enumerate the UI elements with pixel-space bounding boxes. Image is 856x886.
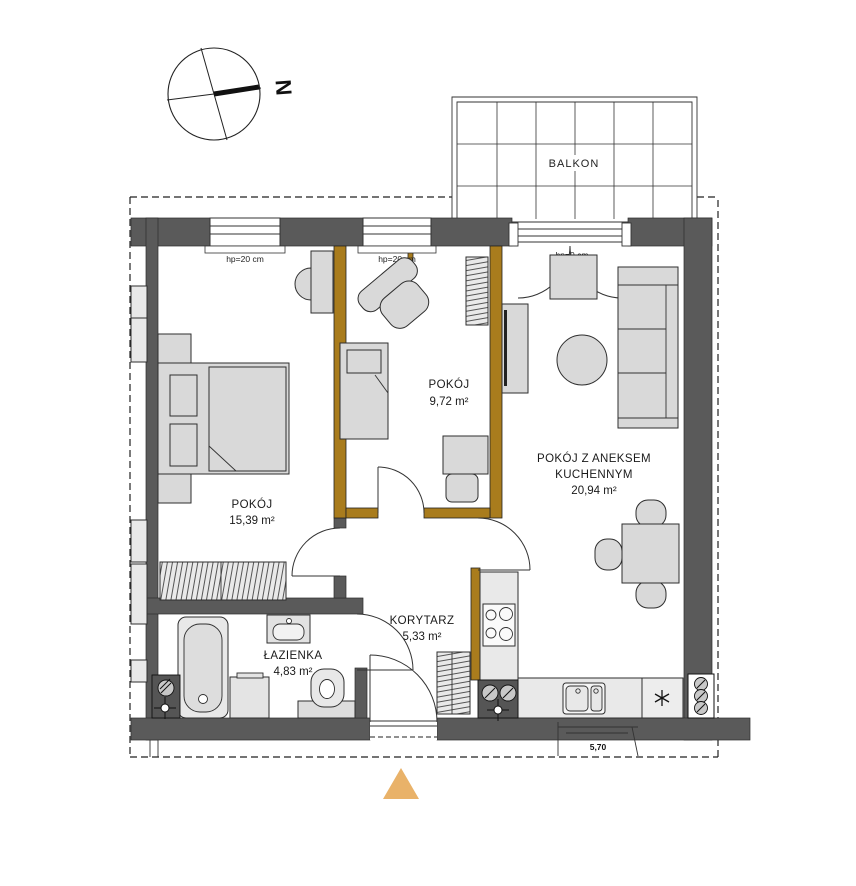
- floor-plan-page: N BALKON: [0, 0, 856, 886]
- bathroom: ŁAZIENKA 4,83 m²: [178, 615, 355, 718]
- corridor-area: 5,33 m²: [403, 631, 442, 643]
- entrance-marker-icon: [383, 768, 419, 799]
- corridor-name: KORYTARZ: [390, 615, 455, 627]
- right-wall: [684, 218, 712, 740]
- corridor-bedroom-wall-stub: [334, 518, 346, 528]
- balcony-label: BALKON: [549, 158, 600, 170]
- small-room-right-wall: [490, 246, 502, 518]
- small-room-name: POKÓJ: [429, 378, 470, 391]
- living-room-door: [478, 518, 530, 570]
- bedroom-desk-chair: [295, 268, 311, 300]
- door-frame: [509, 223, 518, 246]
- bathroom-door-wall-stub: [355, 668, 367, 718]
- bed-pillow: [170, 424, 197, 466]
- corridor: KORYTARZ 5,33 m²: [390, 615, 470, 714]
- bathroom-shaft: [152, 675, 180, 719]
- nightstand: [158, 334, 191, 363]
- living-room-name-1: POKÓJ Z ANEKSEM: [537, 452, 651, 465]
- fridge: [642, 678, 683, 718]
- dining-set: [595, 500, 679, 608]
- bathroom-area: 4,83 m²: [274, 666, 313, 678]
- bed-mattress: [209, 367, 286, 471]
- bed-pillow: [170, 375, 197, 416]
- compass-north-icon: N: [167, 48, 297, 140]
- top-wall-segment: [131, 218, 210, 246]
- dining-chair: [636, 581, 666, 608]
- commode: [550, 255, 597, 299]
- bedroom-desk: [311, 251, 333, 313]
- bottom-wall-segment: [437, 718, 750, 740]
- small-room-desk: [443, 436, 488, 474]
- washbasin: [267, 615, 310, 643]
- round-rug: [557, 335, 607, 385]
- kitchen-shaft: [478, 680, 518, 721]
- bed-pillow: [347, 350, 381, 373]
- left-wall: [146, 218, 158, 740]
- washing-machine: [230, 673, 269, 718]
- corridor-bedroom-wall-stub: [334, 576, 346, 598]
- floor-plan-drawing: N BALKON: [0, 0, 856, 886]
- bedroom: POKÓJ 15,39 m²: [158, 251, 333, 600]
- window-1-label: hp=20 cm: [226, 254, 264, 264]
- bottom-wall-segment: [131, 718, 370, 740]
- compass-north-label: N: [270, 79, 296, 97]
- small-room: POKÓJ 9,72 m²: [340, 254, 488, 502]
- living-kitchen-room: POKÓJ Z ANEKSEM KUCHENNYM 20,94 m²: [480, 255, 683, 718]
- top-wall-segment: [431, 218, 512, 246]
- bathtub: [178, 617, 228, 718]
- bedroom-area: 15,39 m²: [229, 515, 275, 527]
- kitchen-corridor-wall: [471, 568, 480, 680]
- right-wall-riser-box: [688, 674, 714, 718]
- door-frame: [622, 223, 631, 246]
- nightstand: [158, 474, 191, 503]
- living-room-area: 20,94 m²: [571, 485, 617, 497]
- window-sill: [205, 246, 285, 253]
- small-room-bottom-wall: [424, 508, 490, 518]
- wardrobe-hatch: [466, 257, 488, 325]
- balcony: BALKON: [452, 97, 697, 220]
- small-room-chair: [446, 474, 478, 502]
- top-wall-segment: [280, 218, 363, 246]
- wardrobe-hatch: [437, 652, 470, 714]
- living-room-name-2: KUCHENNYM: [555, 469, 633, 481]
- small-room-door: [378, 467, 424, 513]
- window-sill: [358, 246, 436, 253]
- dining-chair: [595, 539, 622, 570]
- sofa: [618, 267, 678, 428]
- window-1: hp=20 cm: [205, 218, 285, 264]
- kitchen-sink: [563, 683, 605, 714]
- window-2: hp=20 cm: [358, 218, 436, 264]
- dining-chair: [636, 500, 666, 527]
- hob: [483, 604, 515, 646]
- wardrobe-hatch: [160, 562, 286, 600]
- bedroom-name: POKÓJ: [232, 498, 273, 511]
- bedroom-door: [292, 528, 340, 576]
- small-room-bottom-wall: [346, 508, 378, 518]
- neighbor-dimension-label: 5,70: [590, 742, 607, 752]
- small-room-area: 9,72 m²: [430, 396, 469, 408]
- armchair: [354, 254, 442, 341]
- tv-screen: [504, 310, 507, 386]
- dining-table: [622, 524, 679, 583]
- entrance-door: [370, 655, 437, 740]
- bathroom-name: ŁAZIENKA: [264, 650, 323, 662]
